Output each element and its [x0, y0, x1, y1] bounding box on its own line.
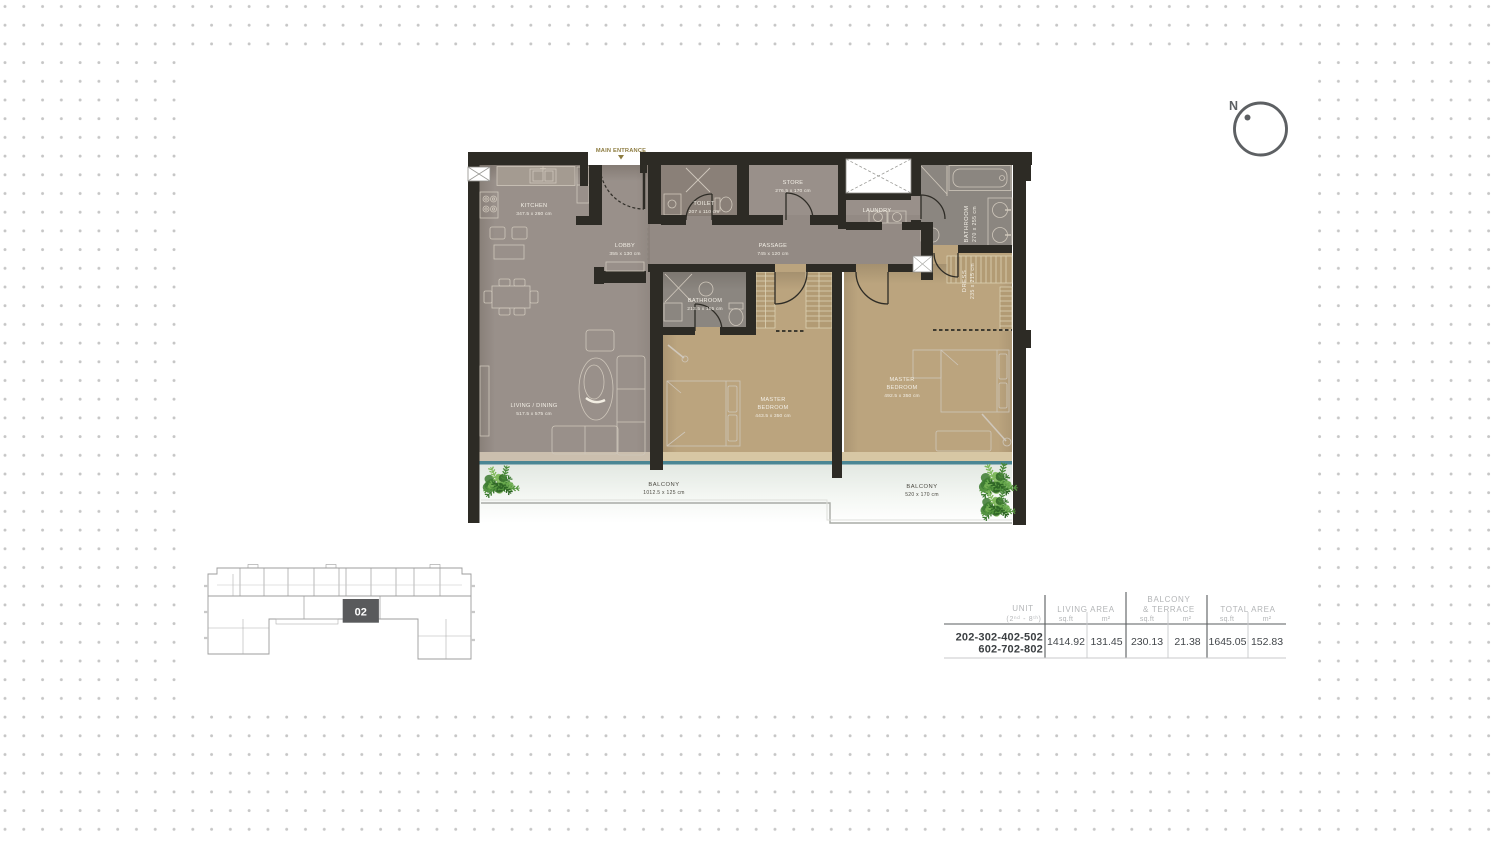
svg-text:131.45: 131.45: [1090, 636, 1122, 648]
svg-text:02: 02: [355, 607, 367, 619]
svg-text:152.83: 152.83: [1251, 636, 1283, 648]
svg-text:BATHROOM: BATHROOM: [964, 205, 970, 242]
svg-text:TOTAL AREA: TOTAL AREA: [1220, 605, 1275, 614]
svg-text:MASTER: MASTER: [889, 377, 914, 383]
svg-text:347.5 x 260 cm: 347.5 x 260 cm: [516, 211, 552, 217]
svg-text:TOILET: TOILET: [693, 201, 715, 207]
svg-text:235 x 215 cm: 235 x 215 cm: [970, 263, 976, 299]
svg-text:sq.ft: sq.ft: [1059, 616, 1073, 623]
svg-text:LAUNDRY: LAUNDRY: [863, 208, 892, 214]
svg-text:1645.05: 1645.05: [1209, 636, 1247, 648]
svg-text:BEDROOM: BEDROOM: [757, 405, 788, 411]
svg-text:1012.5 x 125 cm: 1012.5 x 125 cm: [643, 490, 684, 496]
svg-text:202-302-402-502: 202-302-402-502: [956, 632, 1043, 644]
svg-text:520 x 170 cm: 520 x 170 cm: [905, 492, 939, 498]
svg-text:492.5 x 350 cm: 492.5 x 350 cm: [884, 393, 920, 399]
svg-text:517.5 x 575 cm: 517.5 x 575 cm: [516, 411, 552, 417]
svg-text:276.5 x 170 cm: 276.5 x 170 cm: [775, 188, 811, 194]
svg-text:m²: m²: [1102, 616, 1111, 623]
svg-text:KITCHEN: KITCHEN: [521, 203, 548, 209]
svg-text:sq.ft: sq.ft: [1220, 616, 1234, 623]
svg-text:270 x 255 cm: 270 x 255 cm: [972, 206, 978, 242]
svg-text:LIVING AREA: LIVING AREA: [1057, 605, 1115, 614]
svg-text:BATHROOM: BATHROOM: [688, 298, 722, 304]
svg-text:UNIT: UNIT: [1012, 604, 1033, 613]
svg-text:m²: m²: [1263, 616, 1272, 623]
svg-text:N: N: [1229, 99, 1238, 113]
svg-text:PASSAGE: PASSAGE: [759, 243, 787, 249]
svg-text:MAIN ENTRANCE: MAIN ENTRANCE: [596, 148, 646, 154]
svg-text:443.5 x 350 cm: 443.5 x 350 cm: [755, 413, 791, 419]
svg-text:602-702-802: 602-702-802: [978, 644, 1043, 656]
svg-text:& TERRACE: & TERRACE: [1143, 605, 1195, 614]
svg-text:LOBBY: LOBBY: [615, 243, 635, 249]
svg-text:207 x 110 cm: 207 x 110 cm: [689, 209, 720, 215]
svg-text:230.13: 230.13: [1131, 636, 1163, 648]
svg-text:DRESS: DRESS: [962, 270, 968, 292]
svg-text:LIVING / DINING: LIVING / DINING: [510, 403, 557, 409]
svg-text:BALCONY: BALCONY: [648, 482, 679, 488]
svg-text:m²: m²: [1183, 616, 1192, 623]
svg-text:21.38: 21.38: [1174, 636, 1200, 648]
svg-text:1414.92: 1414.92: [1047, 636, 1085, 648]
svg-text:STORE: STORE: [783, 180, 804, 186]
svg-text:MASTER: MASTER: [760, 397, 785, 403]
svg-text:BALCONY: BALCONY: [906, 484, 937, 490]
svg-text:355 x 130 cm: 355 x 130 cm: [609, 251, 640, 257]
svg-text:BEDROOM: BEDROOM: [886, 385, 917, 391]
svg-text:213.5 x 155 cm: 213.5 x 155 cm: [687, 306, 723, 312]
svg-text:745 x 120 cm: 745 x 120 cm: [757, 251, 788, 257]
svg-text:BALCONY: BALCONY: [1147, 595, 1190, 604]
svg-text:sq.ft: sq.ft: [1140, 616, 1154, 623]
